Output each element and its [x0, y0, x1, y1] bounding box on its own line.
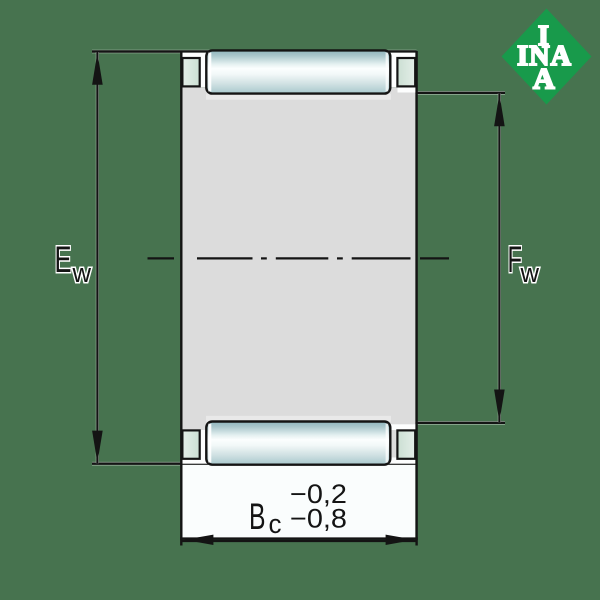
- svg-text:−0,8: −0,8: [290, 504, 347, 534]
- svg-text:w: w: [520, 258, 540, 288]
- svg-text:c: c: [269, 509, 282, 539]
- svg-text:A: A: [533, 63, 556, 96]
- svg-text:E: E: [55, 238, 72, 280]
- svg-text:B: B: [249, 495, 266, 537]
- svg-text:w: w: [72, 258, 92, 288]
